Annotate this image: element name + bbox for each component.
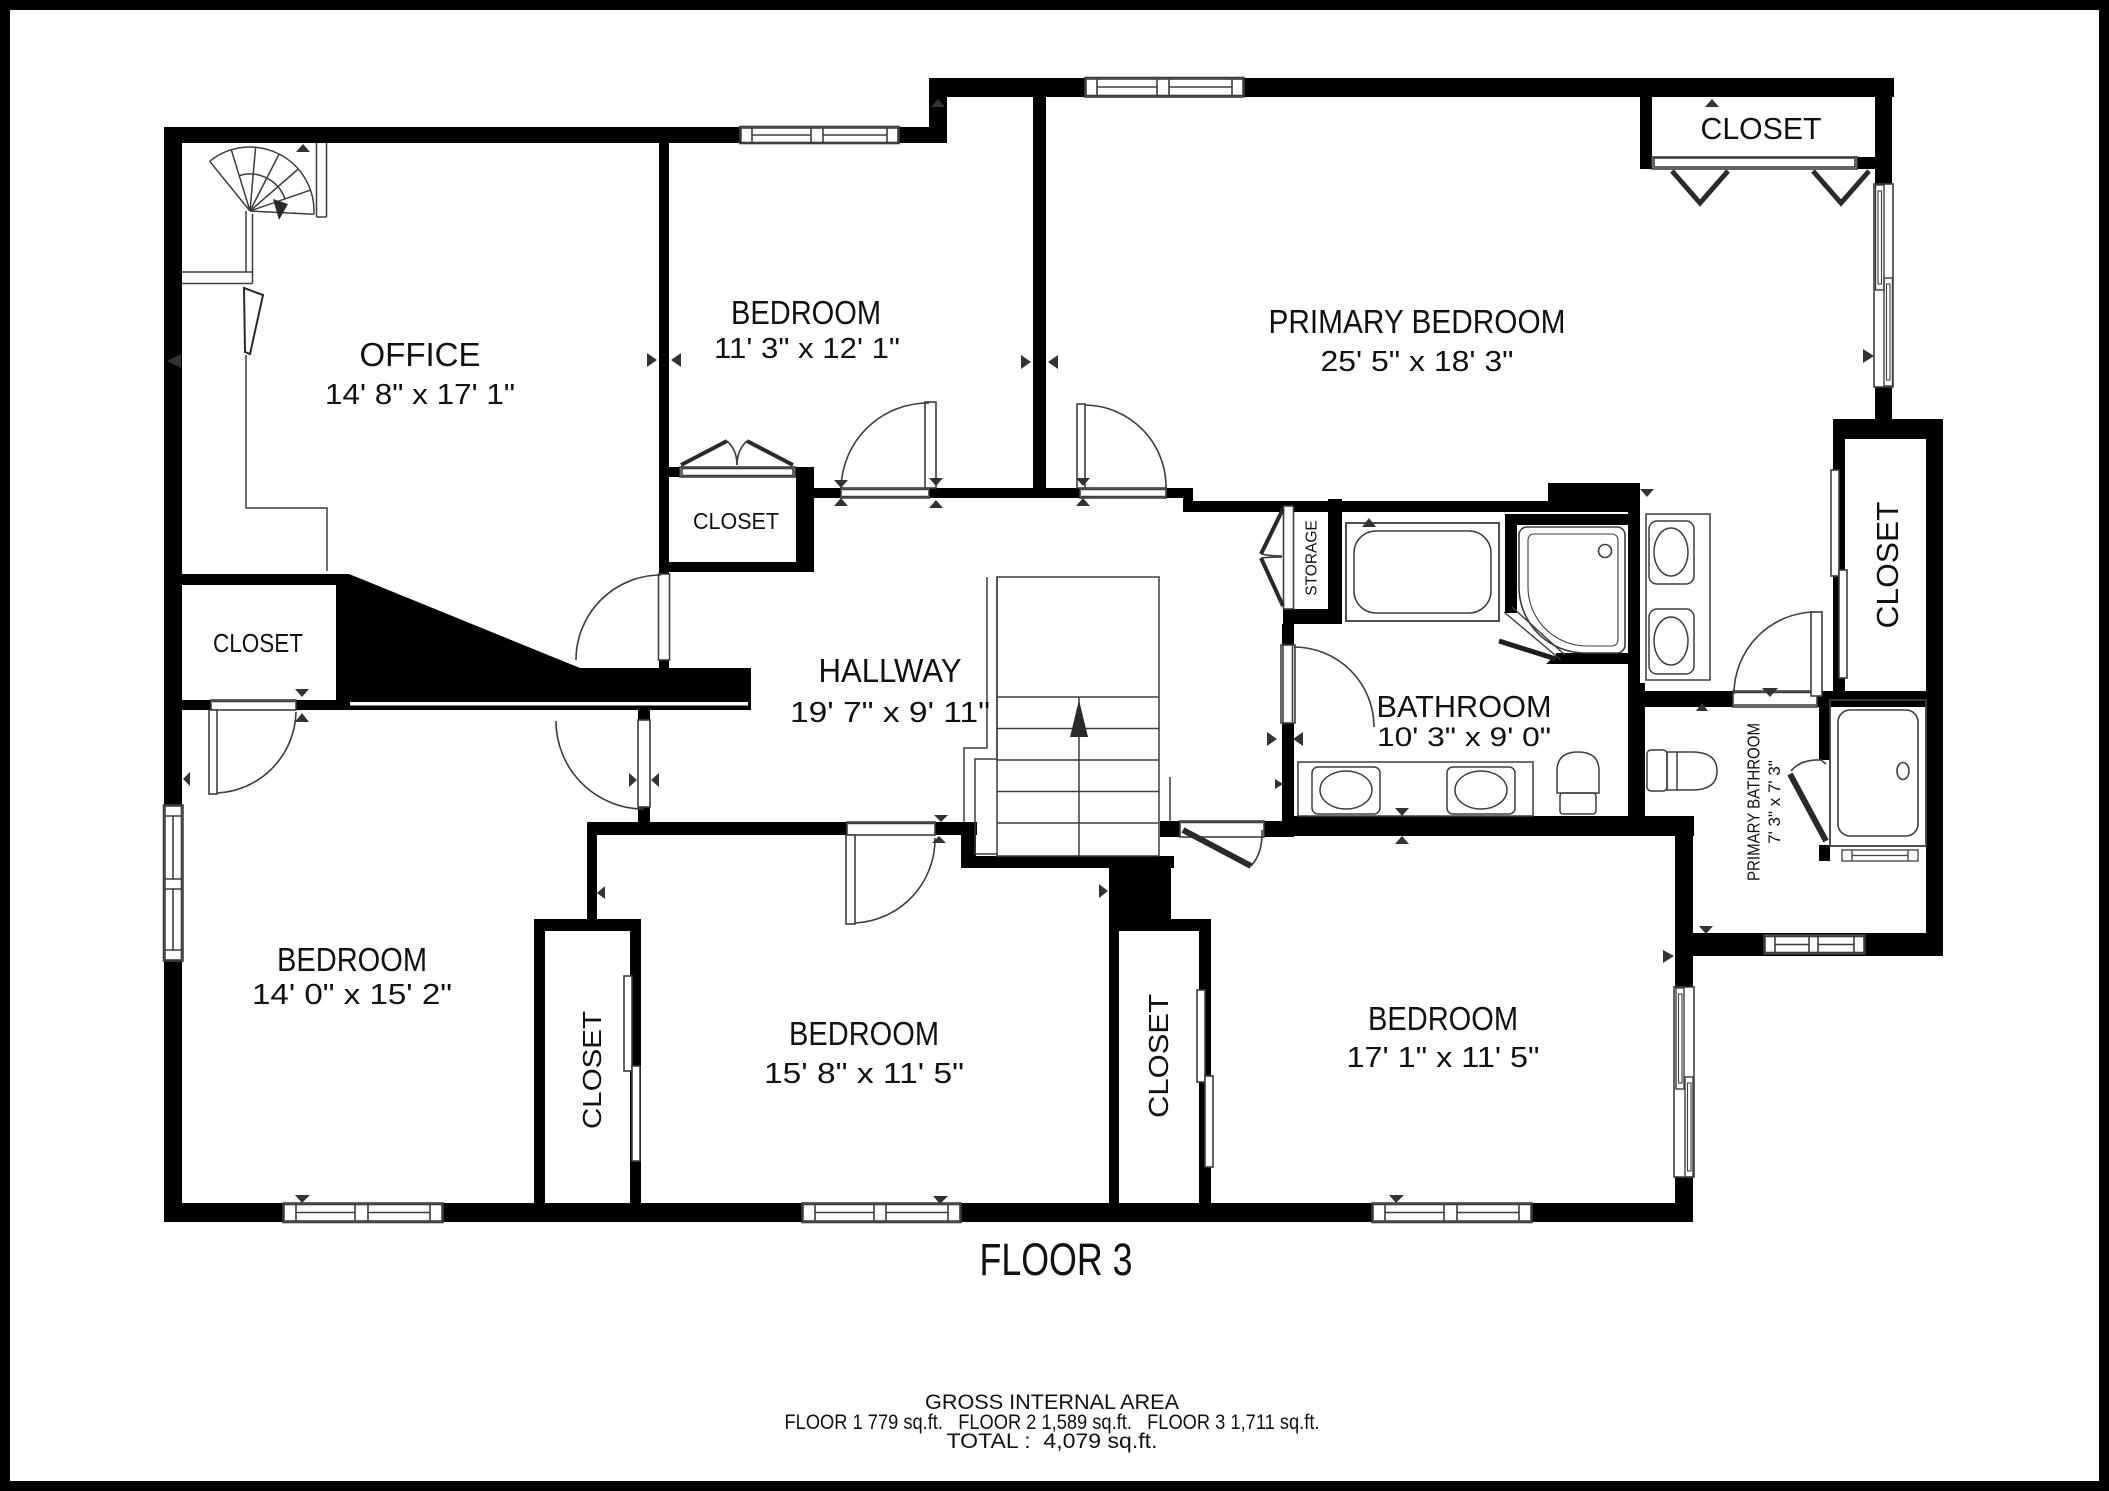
svg-text:CLOSET: CLOSET — [1701, 111, 1822, 146]
svg-text:BEDROOM: BEDROOM — [731, 294, 881, 331]
svg-text:OFFICE: OFFICE — [360, 336, 481, 373]
svg-text:CLOSET: CLOSET — [1870, 501, 1905, 628]
svg-text:10' 3" x 9' 0": 10' 3" x 9' 0" — [1377, 722, 1551, 752]
svg-text:TOTAL : 4,079 sq.ft.: TOTAL : 4,079 sq.ft. — [947, 1430, 1158, 1453]
svg-text:BATHROOM: BATHROOM — [1377, 689, 1552, 724]
svg-text:7' 3" x 7' 3": 7' 3" x 7' 3" — [1765, 760, 1784, 844]
svg-text:PRIMARY BATHROOM: PRIMARY BATHROOM — [1744, 723, 1764, 881]
svg-text:BEDROOM: BEDROOM — [1368, 1000, 1518, 1037]
svg-text:HALLWAY: HALLWAY — [819, 652, 962, 689]
svg-text:CLOSET: CLOSET — [693, 508, 779, 534]
svg-text:CLOSET: CLOSET — [1143, 994, 1174, 1118]
svg-text:CLOSET: CLOSET — [213, 628, 303, 658]
svg-text:PRIMARY BEDROOM: PRIMARY BEDROOM — [1269, 303, 1566, 340]
svg-text:BEDROOM: BEDROOM — [789, 1015, 939, 1052]
svg-text:STORAGE: STORAGE — [1304, 520, 1321, 596]
svg-text:25' 5" x 18' 3": 25' 5" x 18' 3" — [1321, 346, 1514, 378]
svg-text:15' 8" x 11' 5": 15' 8" x 11' 5" — [764, 1058, 964, 1090]
svg-text:14' 8" x 17' 1": 14' 8" x 17' 1" — [325, 379, 515, 411]
svg-text:BEDROOM: BEDROOM — [277, 941, 427, 978]
svg-text:FLOOR 3: FLOOR 3 — [980, 1234, 1133, 1285]
svg-text:17' 1" x 11' 5": 17' 1" x 11' 5" — [1347, 1042, 1540, 1074]
svg-text:11' 3" x 12' 1": 11' 3" x 12' 1" — [714, 333, 900, 365]
svg-text:14' 0" x 15' 2": 14' 0" x 15' 2" — [252, 979, 452, 1011]
svg-text:CLOSET: CLOSET — [577, 1011, 607, 1129]
svg-text:19' 7" x 9' 11": 19' 7" x 9' 11" — [790, 697, 990, 729]
